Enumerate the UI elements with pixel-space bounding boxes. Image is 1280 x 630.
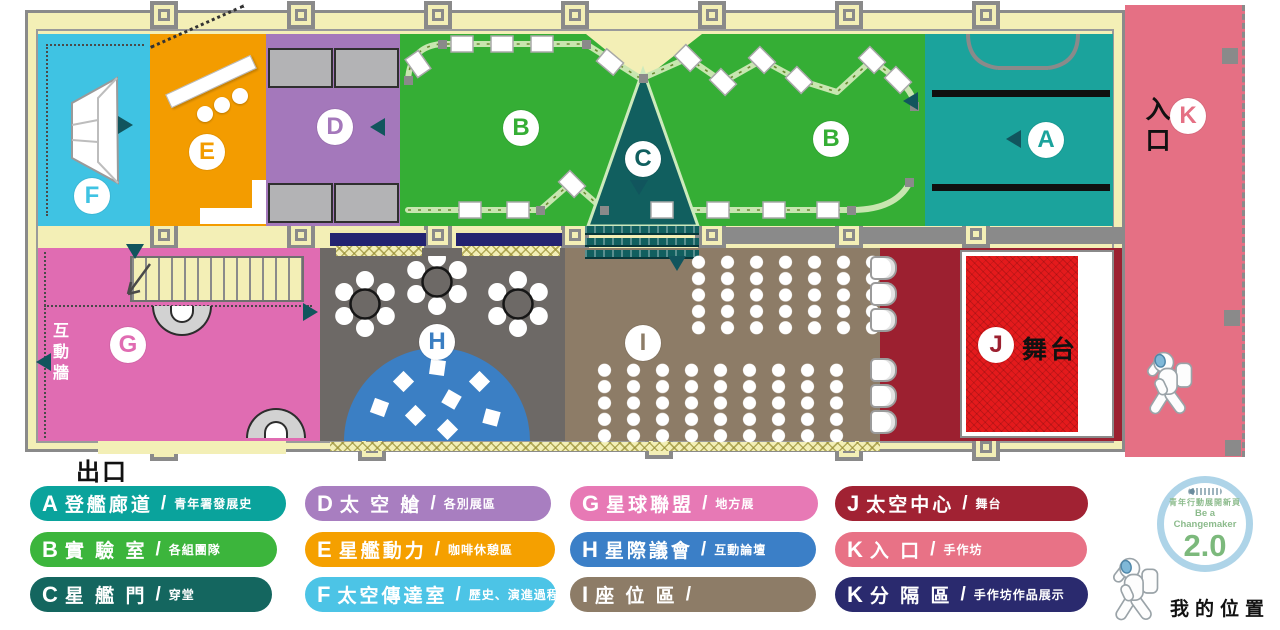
- dome-seat: [405, 405, 426, 426]
- gate-steps: [585, 226, 699, 235]
- direction-arrow-icon: [370, 118, 385, 136]
- legend-slash: /: [155, 584, 160, 606]
- staircase: [130, 256, 304, 302]
- direction-arrow-icon: [126, 244, 144, 259]
- partition-wall: [456, 230, 562, 246]
- zone-label-f: F: [74, 178, 110, 214]
- legend-slash: /: [930, 539, 935, 561]
- legend-name: 太空傳達室: [337, 581, 447, 608]
- direction-arrow-icon: [630, 180, 648, 195]
- legend-code: C: [42, 582, 58, 608]
- legend-sub: 手作坊作品展示: [974, 586, 1065, 603]
- legend-name: 分 隔 區: [870, 581, 953, 608]
- legend-slash: /: [430, 493, 435, 515]
- legend-slash: /: [686, 584, 691, 606]
- legend-name: 太空中心: [866, 490, 954, 517]
- legend-item-g: G 星球聯盟 / 地方展: [570, 486, 818, 521]
- legend-name: 登艦廊道: [65, 490, 153, 517]
- legend-item-j: J 太空中心 / 舞台: [835, 486, 1088, 521]
- dome-seat: [441, 389, 461, 409]
- dome-seat: [469, 371, 490, 392]
- legend-sub: 歷史、演進過程: [469, 586, 556, 603]
- event-badge: 青年行動展開新頁 Be a Changemaker 2.0: [1157, 476, 1253, 572]
- legend-code: J: [847, 491, 859, 517]
- legend-item-k-partition: K 分 隔 區 / 手作坊作品展示: [835, 577, 1088, 612]
- zone-label-e: E: [189, 134, 225, 170]
- zone-label-b2: B: [813, 121, 849, 157]
- entrance-label: 入口: [1138, 96, 1174, 158]
- legend-sub: 地方展: [715, 495, 754, 512]
- badge-tagline-en: Be a Changemaker: [1164, 508, 1246, 530]
- legend-item-e: E 星艦動力 / 咖啡休憩區: [305, 532, 555, 567]
- direction-arrow-icon: [1006, 130, 1021, 148]
- armchair: [870, 256, 897, 280]
- zone-label-g: G: [110, 327, 146, 363]
- legend-item-d: D 太 空 艙 / 各別展區: [305, 486, 551, 521]
- dome-seat: [482, 408, 500, 426]
- mid-partition-wall: [695, 227, 1122, 244]
- legend-sub: 各組團隊: [169, 541, 221, 558]
- legend-name: 入 口: [870, 536, 922, 563]
- armchair: [870, 410, 897, 434]
- badge-tagline-zh: 青年行動展開新頁: [1169, 497, 1241, 508]
- zone-label-d: D: [317, 109, 353, 145]
- legend-item-h: H 星際議會 / 互動論壇: [570, 532, 816, 567]
- armchair: [870, 358, 897, 382]
- legend-code: B: [42, 537, 58, 563]
- wall-block: [1224, 310, 1240, 326]
- cafe-table: [197, 106, 213, 122]
- exit-label: 出口: [76, 452, 128, 487]
- legend-code: G: [582, 491, 599, 517]
- dome-seat: [393, 371, 414, 392]
- exhibit-wall: [932, 90, 1110, 97]
- pillar: [972, 1, 1000, 29]
- exhibit-box: [334, 183, 399, 223]
- legend-name: 星艦動力: [339, 536, 427, 563]
- seat-grid-bottom: [590, 362, 851, 444]
- stage-label: 舞台: [1022, 330, 1078, 366]
- legend-name: 星球聯盟: [606, 490, 694, 517]
- door-swing-graphic: [938, 30, 1108, 82]
- armchair: [870, 282, 897, 306]
- legend-code: H: [582, 537, 598, 563]
- legend-code: I: [582, 582, 588, 608]
- pillar: [424, 1, 452, 29]
- zone-label-k: K: [1170, 98, 1206, 134]
- pillar: [561, 1, 589, 29]
- legend-sub: 咖啡休憩區: [448, 541, 513, 558]
- astronaut-icon: [1142, 350, 1204, 434]
- legend-slash: /: [701, 539, 706, 561]
- legend-item-b: B 實 驗 室 / 各組團隊: [30, 532, 277, 567]
- legend-name: 星際議會: [605, 536, 693, 563]
- dome-seat: [370, 398, 389, 417]
- f-dotted-boundary: [46, 44, 48, 216]
- cafe-table: [214, 97, 230, 113]
- my-location-label: 我的位置: [1170, 594, 1270, 621]
- legend-slash: /: [455, 584, 460, 606]
- stair-arrow-icon: [112, 258, 156, 302]
- legend-name: 星 艦 門: [65, 581, 148, 608]
- partition-wall: [330, 230, 426, 246]
- gate-steps: [585, 238, 699, 247]
- armchair: [870, 308, 897, 332]
- legend-sub: 青年署發展史: [174, 495, 252, 512]
- direction-arrow-icon: [303, 303, 318, 321]
- legend-slash: /: [435, 539, 440, 561]
- astronaut-icon: [1108, 556, 1170, 630]
- legend-code: E: [317, 537, 332, 563]
- legend-sub: 各別展區: [444, 495, 496, 512]
- wall-block: [1225, 440, 1241, 456]
- wall-hatch: [336, 246, 422, 256]
- legend-slash: /: [155, 539, 160, 561]
- cafe-table: [232, 88, 248, 104]
- zone-label-c: C: [625, 141, 661, 177]
- legend-sub: 手作坊: [943, 541, 982, 558]
- exhibit-box: [334, 48, 399, 88]
- legend-code: D: [317, 491, 333, 517]
- legend-item-c: C 星 艦 門 / 穿堂: [30, 577, 272, 612]
- armchair: [870, 384, 897, 408]
- pillar: [150, 1, 178, 29]
- pillar: [835, 1, 863, 29]
- interactive-wall-label: 互動牆: [46, 322, 70, 385]
- dome-seat: [429, 359, 446, 376]
- legend-item-a: A 登艦廊道 / 青年署發展史: [30, 486, 286, 521]
- exhibit-wall: [932, 184, 1110, 191]
- legend-slash: /: [960, 584, 965, 606]
- pillar: [287, 1, 315, 29]
- wall-block: [1222, 48, 1238, 64]
- exhibit-box: [268, 183, 333, 223]
- legend-item-i: I 座 位 區 /: [570, 577, 816, 612]
- legend-item-k-entrance: K 入 口 / 手作坊: [835, 532, 1087, 567]
- zone-label-a: A: [1028, 122, 1064, 158]
- f-dotted-boundary: [46, 44, 144, 46]
- legend-sub: 舞台: [976, 495, 1002, 512]
- legend-name: 座 位 區: [595, 581, 678, 608]
- exhibit-box: [268, 48, 333, 88]
- legend-sub: 穿堂: [169, 586, 195, 603]
- ministry-logo-mark: [1188, 488, 1222, 495]
- legend-slash: /: [161, 493, 166, 515]
- pillar: [698, 1, 726, 29]
- direction-arrow-icon: [118, 116, 133, 134]
- legend-code: K: [847, 582, 863, 608]
- badge-version: 2.0: [1183, 530, 1226, 561]
- legend-item-f: F 太空傳達室 / 歷史、演進過程: [305, 577, 556, 612]
- seat-grid-top: [684, 254, 887, 336]
- legend-name: 太 空 艙: [340, 490, 423, 517]
- legend-sub: 互動論壇: [714, 541, 766, 558]
- legend-code: A: [42, 491, 58, 517]
- zone-label-j: J: [978, 327, 1014, 363]
- zone-label-h: H: [419, 324, 455, 360]
- legend-code: F: [317, 582, 330, 608]
- zone-label-b: B: [503, 110, 539, 146]
- e-counter: [200, 208, 266, 224]
- dome-seat: [437, 419, 458, 440]
- direction-arrow-icon: [668, 256, 686, 271]
- direction-arrow-icon: [903, 92, 918, 110]
- legend-name: 實 驗 室: [65, 536, 148, 563]
- wall-hatch: [462, 246, 560, 256]
- legend-slash: /: [962, 493, 967, 515]
- legend-code: K: [847, 537, 863, 563]
- zone-label-i: I: [625, 325, 661, 361]
- legend-slash: /: [702, 493, 707, 515]
